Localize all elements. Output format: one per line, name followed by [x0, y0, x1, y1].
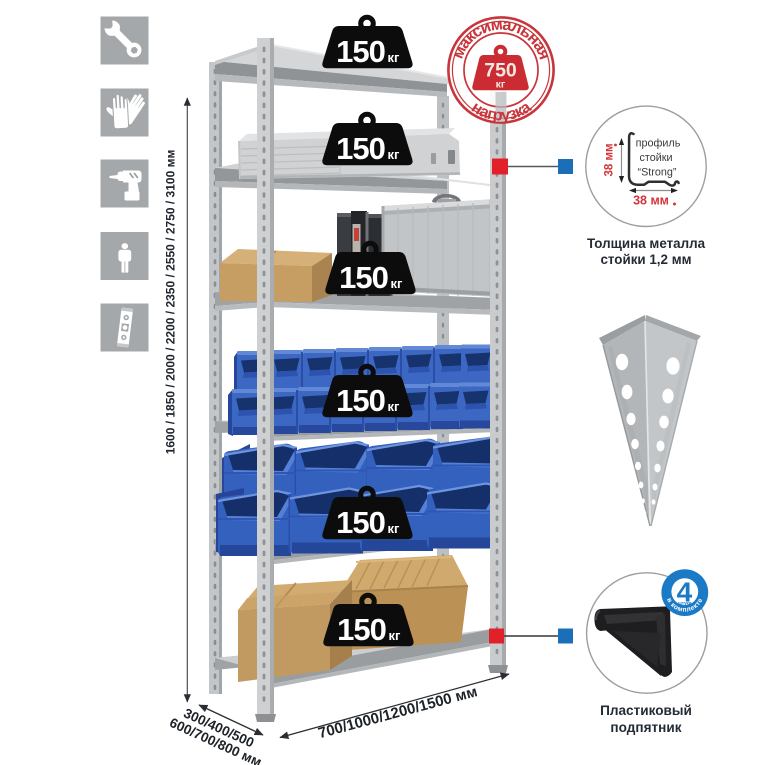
svg-text:стойки 1,2 мм: стойки 1,2 мм	[600, 252, 691, 267]
svg-text:профиль: профиль	[636, 138, 681, 150]
svg-text:штуки: штуки	[678, 600, 692, 605]
svg-text:38 мм: 38 мм	[604, 143, 616, 176]
svg-text:стойки: стойки	[639, 152, 672, 164]
svg-text:подпятник: подпятник	[610, 720, 681, 735]
svg-text:1600 / 1850 / 2000 / 2200 / 23: 1600 / 1850 / 2000 / 2200 / 2350 / 2550 …	[164, 150, 178, 455]
svg-text:“Strong”: “Strong”	[637, 167, 676, 179]
svg-text:кг: кг	[496, 79, 506, 91]
svg-text:38 мм: 38 мм	[633, 194, 669, 208]
svg-text:Толщина металла: Толщина металла	[587, 236, 706, 251]
svg-text:Пластиковый: Пластиковый	[600, 703, 692, 718]
